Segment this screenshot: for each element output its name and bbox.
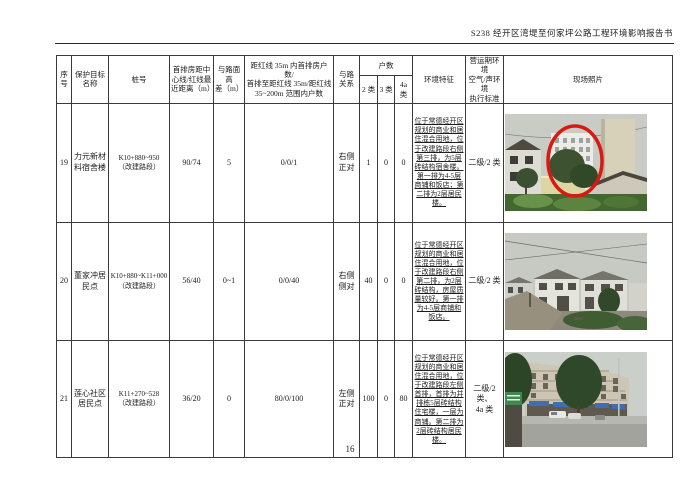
cell-households-range: 80/0/100 xyxy=(245,341,334,458)
cell-height-diff: 0 xyxy=(214,341,245,458)
cell-distance: 90/74 xyxy=(170,103,214,222)
col-households-range-header: 距红线 35m 内首排房户数/ 首排至距红线 35m/距红线 35~200m 范… xyxy=(245,56,334,104)
col-distance-header: 首排房距中 心线/红线最 近距离（m） xyxy=(170,56,214,104)
cell-index: 19 xyxy=(57,103,72,222)
site-photo-village-houses xyxy=(505,233,647,330)
col-height-diff-header: 与路面高 差（m） xyxy=(214,56,245,104)
table-row-19: 19 力元新材料宿舍楼 K10+880~950 （改建路段） 90/74 5 0… xyxy=(57,103,673,222)
cell-stake: K10+880~K11+000 （改建路段） xyxy=(109,222,170,341)
cell-standard: 二级/2 类、 4a 类 xyxy=(466,341,504,458)
cell-class3: 0 xyxy=(378,222,395,341)
cell-height-diff: 0~1 xyxy=(214,222,245,341)
cell-road-relation: 右侧 正对 xyxy=(334,103,360,222)
col-name-header: 保护目标 名称 xyxy=(72,56,109,104)
cell-class4a: 80 xyxy=(395,341,413,458)
cell-standard: 二级/2 类 xyxy=(466,222,504,341)
cell-households-range: 0/0/40 xyxy=(245,222,334,341)
page-number: 16 xyxy=(0,444,700,454)
cell-photo xyxy=(504,222,673,341)
cell-env-features: 位于常德经开区规划的商业和居住混合用地，位于改建路段左侧首排，首排为并排栋5层砖… xyxy=(413,341,466,458)
cell-index: 20 xyxy=(57,222,72,341)
cell-height-diff: 5 xyxy=(214,103,245,222)
table-row-21: 21 莲心社区居民点 K11+270~528 （改建路段） 36/20 0 80… xyxy=(57,341,673,458)
col-class2-header: 2 类 xyxy=(360,76,378,104)
col-class3-header: 3 类 xyxy=(378,76,395,104)
cell-road-relation: 左侧 正对 xyxy=(334,341,360,458)
cell-class3: 0 xyxy=(378,103,395,222)
col-class4a-header: 4a 类 xyxy=(395,76,413,104)
col-index-header: 序 号 xyxy=(57,56,72,104)
cell-households-range: 0/0/1 xyxy=(245,103,334,222)
col-standard-header: 营运期环境 空气/声环境 执行标准 xyxy=(466,56,504,104)
cell-stake: K10+880~950 （改建路段） xyxy=(109,103,170,222)
col-households-header: 户数 xyxy=(360,56,413,76)
doc-title: S238 经开区湾堤至何家坪公路工程环境影响报告书 xyxy=(471,27,673,39)
cell-class4a: 0 xyxy=(395,222,413,341)
col-photo-header: 现场照片 xyxy=(504,56,673,104)
document-page: S238 经开区湾堤至何家坪公路工程环境影响报告书 序 号 保护目标 名称 桩号… xyxy=(0,0,700,497)
header-rule xyxy=(55,43,674,44)
cell-env-features: 位于常德经开区规划的商业和居住混合用地，位于改建路段右侧第二排，为2层砖结构，房… xyxy=(413,222,466,341)
cell-distance: 56/40 xyxy=(170,222,214,341)
cell-class2: 40 xyxy=(360,222,378,341)
cell-class2: 100 xyxy=(360,341,378,458)
cell-class2: 1 xyxy=(360,103,378,222)
cell-road-relation: 右侧 侧对 xyxy=(334,222,360,341)
cell-target-name: 董家冲居民点 xyxy=(72,222,109,341)
cell-target-name: 莲心社区居民点 xyxy=(72,341,109,458)
impact-table: 序 号 保护目标 名称 桩号 首排房距中 心线/红线最 近距离（m） 与路面高 … xyxy=(56,55,673,458)
col-stake-header: 桩号 xyxy=(109,56,170,104)
cell-photo xyxy=(504,103,673,222)
col-env-features-header: 环境特征 xyxy=(413,56,466,104)
cell-standard: 二级/2 类 xyxy=(466,103,504,222)
site-photo-street-buildings xyxy=(505,352,647,447)
cell-index: 21 xyxy=(57,341,72,458)
cell-distance: 36/20 xyxy=(170,341,214,458)
cell-class3: 0 xyxy=(378,341,395,458)
cell-env-features: 位于常德经开区规划的商业和居住混合用地，位于改建路段右侧第三排，为5层砖结构宿舍… xyxy=(413,103,466,222)
cell-class4a: 0 xyxy=(395,103,413,222)
site-photo-dormitory xyxy=(505,114,647,211)
cell-stake: K11+270~528 （改建路段） xyxy=(109,341,170,458)
cell-target-name: 力元新材料宿舍楼 xyxy=(72,103,109,222)
col-road-relation-header: 与路 关系 xyxy=(334,56,360,104)
table-row-20: 20 董家冲居民点 K10+880~K11+000 （改建路段） 56/40 0… xyxy=(57,222,673,341)
cell-photo xyxy=(504,341,673,458)
